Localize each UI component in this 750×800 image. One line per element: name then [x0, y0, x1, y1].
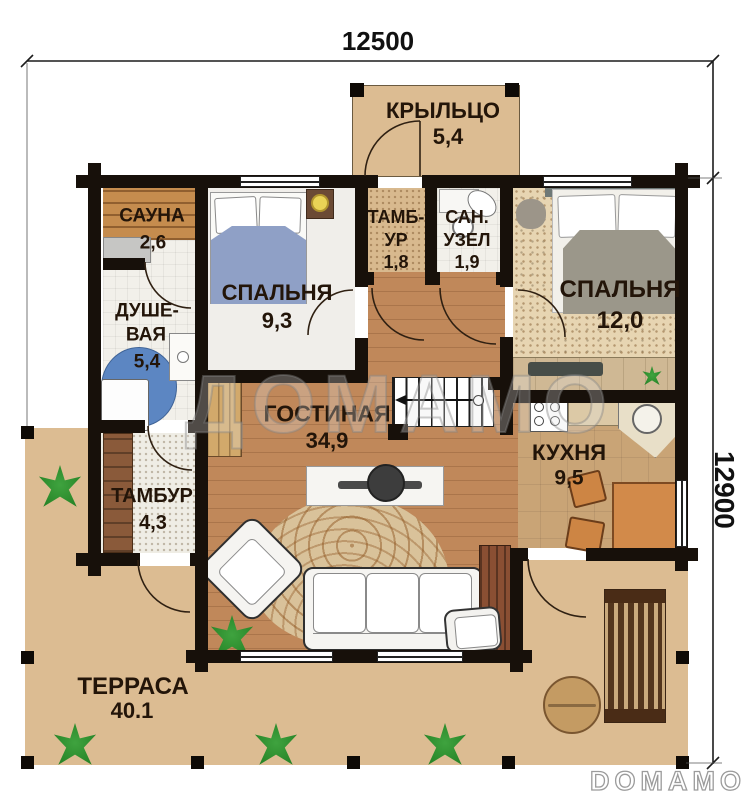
- window: [240, 651, 333, 662]
- room-label-kitchen: КУХНЯ: [532, 442, 606, 464]
- room-label-living: ГОСТИНАЯ: [264, 403, 391, 426]
- wall-segment: [195, 370, 368, 383]
- room-label-shower: ВАЯ: [126, 326, 166, 345]
- wall-segment: [88, 553, 140, 566]
- dimension-tick: [21, 55, 33, 67]
- laptop: [528, 362, 603, 376]
- log-end: [510, 663, 523, 672]
- floor-plan-canvas: КРЫЛЬЦО 5,4 САУНА 2,6 СПАЛЬНЯ 9,3 ТАМБ- …: [0, 0, 750, 800]
- terrace-bench: [604, 589, 666, 723]
- room-area-sauna: 2,6: [140, 234, 166, 253]
- pouf: [516, 199, 546, 229]
- dimension-right-label: 12900: [700, 405, 740, 575]
- room-label-entry: ТАМБ-: [368, 208, 425, 226]
- terrace-round-table: [543, 676, 601, 734]
- column-post: [191, 756, 204, 769]
- living-cabinet: [206, 377, 242, 457]
- wall-segment: [195, 553, 208, 663]
- column-post: [21, 426, 34, 439]
- wall-segment: [500, 403, 513, 435]
- stove-burner: [550, 402, 560, 412]
- room-label-entry: УР: [384, 231, 407, 249]
- room-label-porch: КРЫЛЬЦО: [386, 100, 500, 122]
- wall-segment: [188, 420, 195, 433]
- bench-slats: [608, 603, 662, 709]
- log-end: [675, 561, 688, 571]
- room-label-wc: САН.: [445, 208, 489, 226]
- dimension-tick: [707, 172, 719, 184]
- column-post: [21, 756, 34, 769]
- wall-segment: [510, 553, 523, 663]
- log-end: [675, 163, 688, 175]
- stair-start-circle: [473, 395, 484, 406]
- stair-arrow-head: [395, 395, 406, 405]
- wall-segment: [426, 272, 440, 285]
- table-lamp: [311, 194, 329, 212]
- window: [240, 176, 320, 187]
- wall-segment: [355, 175, 368, 287]
- room-area-tambour: 4,3: [139, 513, 167, 533]
- stove-burner: [534, 416, 544, 426]
- kitchen-table: [612, 482, 684, 554]
- log-end: [195, 663, 208, 672]
- stair-direction-line: [403, 399, 477, 401]
- log-end: [88, 163, 101, 175]
- log-end: [76, 553, 88, 566]
- log-end: [186, 650, 195, 663]
- room-area-bedroom-1: 9,3: [262, 310, 293, 332]
- dimension-tick: [707, 55, 719, 67]
- room-label-tambour: ТАМБУР: [111, 486, 193, 506]
- wall-segment: [103, 258, 145, 270]
- log-end: [76, 175, 88, 188]
- room-area-living: 34,9: [306, 430, 349, 452]
- wall-segment: [488, 377, 501, 390]
- armchair-cushion: [217, 536, 288, 607]
- wall-segment: [500, 390, 688, 403]
- wall-segment: [388, 424, 408, 440]
- log-end: [523, 650, 532, 663]
- window: [543, 176, 632, 187]
- room-area-bedroom-2: 12,0: [597, 309, 644, 333]
- room-label-shower: ДУШЕ-: [115, 302, 179, 321]
- tv-base: [367, 464, 405, 502]
- staircase: [392, 377, 494, 427]
- room-label-wc: УЗЕЛ: [443, 231, 490, 249]
- sofa-cushion: [313, 573, 366, 633]
- shower-sink-bowl: [177, 351, 189, 363]
- table-grain: [548, 704, 596, 707]
- column-post: [676, 651, 689, 664]
- room-label-terrace: ТЕРРАСА: [77, 675, 188, 699]
- wall-segment: [586, 548, 688, 561]
- room-area-terrace: 40.1: [111, 700, 154, 722]
- room-area-porch: 5,4: [433, 126, 464, 148]
- wall-segment: [355, 338, 368, 383]
- column-post: [347, 756, 360, 769]
- column-post: [350, 83, 364, 97]
- log-end: [688, 548, 698, 561]
- sofa-cushion: [366, 573, 419, 633]
- bench-end: [605, 709, 665, 722]
- kitchen-sink-bowl: [632, 404, 662, 434]
- wall-segment: [88, 175, 101, 568]
- brand-logo: DOMAMO: [586, 766, 746, 797]
- room-label-bedroom-1: СПАЛЬНЯ: [222, 282, 333, 304]
- room-label-bedroom-2: СПАЛЬНЯ: [560, 278, 681, 302]
- dimension-top-label: 12500: [298, 26, 458, 57]
- wall-segment: [101, 420, 145, 433]
- room-label-sauna: САУНА: [119, 207, 185, 226]
- room-area-wc: 1,9: [454, 253, 479, 271]
- bench-end: [605, 590, 665, 603]
- wall-segment: [500, 175, 513, 287]
- stove-burner: [534, 402, 544, 412]
- wall-segment: [425, 188, 437, 285]
- room-area-entry: 1,8: [383, 253, 408, 271]
- room-area-shower: 5,4: [134, 353, 160, 372]
- wall-segment: [500, 337, 513, 390]
- stove-burner: [550, 416, 560, 426]
- column-post: [505, 83, 519, 97]
- wall-segment: [88, 175, 378, 188]
- wall-segment: [355, 272, 374, 285]
- window: [676, 480, 687, 547]
- column-post: [502, 756, 515, 769]
- wall-segment: [510, 548, 528, 561]
- log-end: [688, 175, 700, 188]
- column-post: [21, 651, 34, 664]
- side-chair: [443, 606, 503, 655]
- side-chair-cushion: [454, 614, 499, 650]
- window: [377, 651, 463, 662]
- log-end: [88, 566, 101, 576]
- wall-segment: [195, 175, 208, 553]
- room-area-kitchen: 9,5: [554, 468, 583, 489]
